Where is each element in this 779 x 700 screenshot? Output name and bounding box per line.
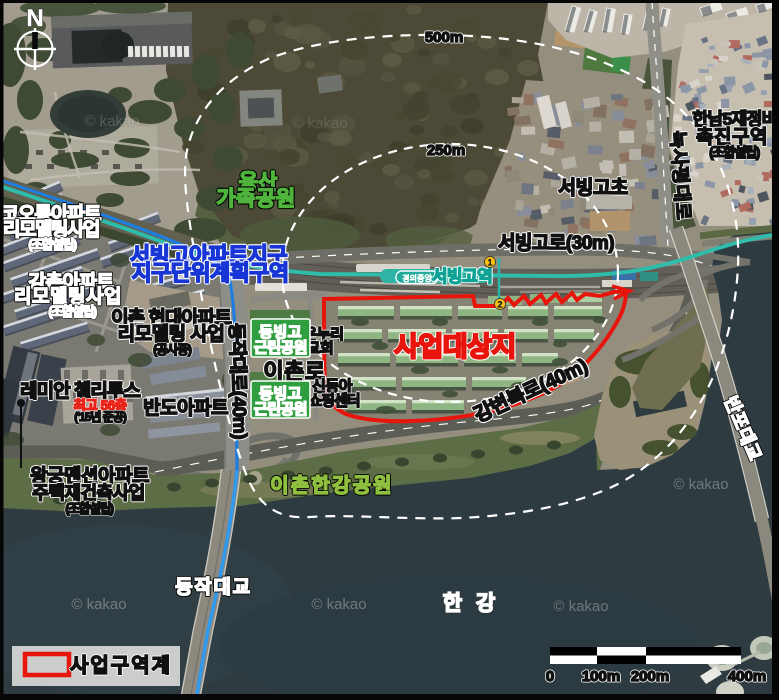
- svg-text:(공사중): (공사중): [153, 342, 192, 357]
- svg-text:서빙고역: 서빙고역: [432, 267, 493, 286]
- svg-text:0: 0: [546, 668, 554, 685]
- svg-text:(조합설립): (조합설립): [709, 144, 760, 160]
- svg-text:N: N: [26, 5, 43, 32]
- svg-text:('15년 준공): ('15년 준공): [74, 410, 127, 424]
- svg-text:쇼핑센터: 쇼핑센터: [308, 393, 359, 410]
- svg-text:근린공원: 근린공원: [254, 339, 307, 357]
- svg-text:근린공원: 근린공원: [254, 400, 307, 418]
- svg-text:© kakao: © kakao: [553, 598, 608, 615]
- svg-text:400m: 400m: [728, 668, 766, 685]
- svg-text:동빙고: 동빙고: [259, 385, 302, 403]
- svg-text:2: 2: [497, 300, 502, 310]
- svg-text:경의중앙: 경의중앙: [402, 273, 432, 283]
- svg-text:동작대교: 동작대교: [175, 576, 252, 598]
- svg-text:서빙고로(30m): 서빙고로(30m): [498, 232, 614, 254]
- svg-text:이촌한강공원: 이촌한강공원: [270, 474, 394, 497]
- svg-text:반도아파트: 반도아파트: [143, 397, 228, 419]
- svg-text:사업대상지: 사업대상지: [394, 332, 516, 362]
- svg-text:250m: 250m: [427, 142, 465, 159]
- svg-text:100m: 100m: [582, 668, 620, 685]
- svg-text:한남5재정비: 한남5재정비: [692, 109, 776, 129]
- svg-text:© kakao: © kakao: [292, 115, 347, 132]
- svg-text:© kakao: © kakao: [71, 596, 126, 613]
- svg-text:© kakao: © kakao: [673, 476, 728, 493]
- svg-text:200m: 200m: [631, 668, 669, 685]
- svg-text:(조합설립): (조합설립): [28, 237, 77, 252]
- svg-text:1: 1: [487, 258, 492, 268]
- svg-text:가족공원: 가족공원: [216, 188, 295, 211]
- svg-text:사업구역계: 사업구역계: [70, 654, 172, 677]
- svg-text:한 강: 한 강: [443, 592, 499, 615]
- svg-text:500m: 500m: [425, 29, 463, 46]
- svg-text:주택재건축사업: 주택재건축사업: [32, 483, 144, 503]
- svg-text:동작대로(40m): 동작대로(40m): [225, 323, 251, 440]
- svg-text:리모델링 사업: 리모델링 사업: [118, 323, 225, 345]
- svg-text:(조합설립): (조합설립): [48, 304, 97, 319]
- svg-text:동빙고: 동빙고: [259, 323, 302, 341]
- svg-text:서빙고초: 서빙고초: [558, 177, 628, 199]
- svg-text:(조합설립): (조합설립): [65, 501, 114, 516]
- svg-text:© kakao: © kakao: [311, 596, 366, 613]
- svg-text:© kakao: © kakao: [84, 113, 139, 130]
- svg-text:지구단위계획구역: 지구단위계획구역: [131, 261, 288, 286]
